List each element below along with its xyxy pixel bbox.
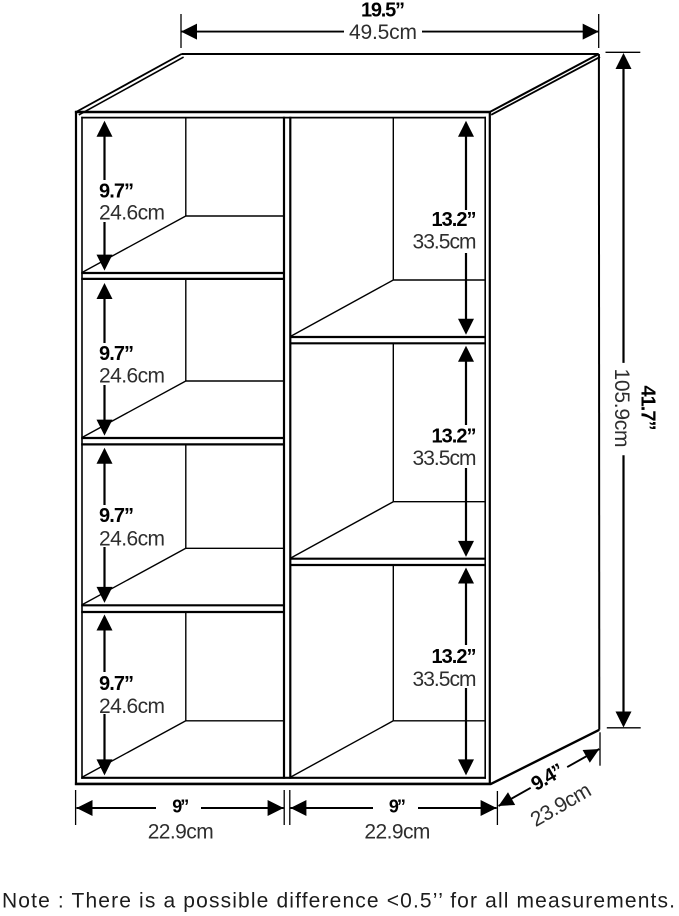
svg-text:9.7”: 9.7” — [99, 180, 134, 202]
svg-text:24.6cm: 24.6cm — [99, 365, 165, 388]
svg-text:9”: 9” — [389, 797, 406, 817]
svg-text:24.6cm: 24.6cm — [99, 695, 165, 718]
svg-text:49.5cm: 49.5cm — [349, 21, 417, 44]
svg-text:9.7”: 9.7” — [99, 505, 134, 527]
svg-text:9.7”: 9.7” — [99, 673, 134, 695]
svg-text:Note : There is a possible dif: Note : There is a possible difference <0… — [2, 890, 675, 913]
svg-text:24.6cm: 24.6cm — [99, 528, 165, 551]
svg-text:9.7”: 9.7” — [99, 343, 134, 365]
svg-text:105.9cm: 105.9cm — [610, 369, 633, 448]
svg-text:22.9cm: 22.9cm — [364, 821, 430, 844]
svg-text:41.7”: 41.7” — [637, 386, 659, 431]
svg-text:33.5cm: 33.5cm — [413, 668, 477, 691]
svg-text:33.5cm: 33.5cm — [413, 230, 477, 253]
svg-text:22.9cm: 22.9cm — [148, 821, 214, 844]
svg-text:33.5cm: 33.5cm — [413, 447, 477, 470]
svg-text:19.5”: 19.5” — [361, 0, 405, 22]
svg-text:13.2”: 13.2” — [432, 209, 477, 231]
svg-text:13.2”: 13.2” — [432, 426, 477, 448]
svg-text:9”: 9” — [172, 797, 189, 817]
svg-text:13.2”: 13.2” — [432, 646, 477, 668]
svg-text:24.6cm: 24.6cm — [99, 201, 165, 224]
